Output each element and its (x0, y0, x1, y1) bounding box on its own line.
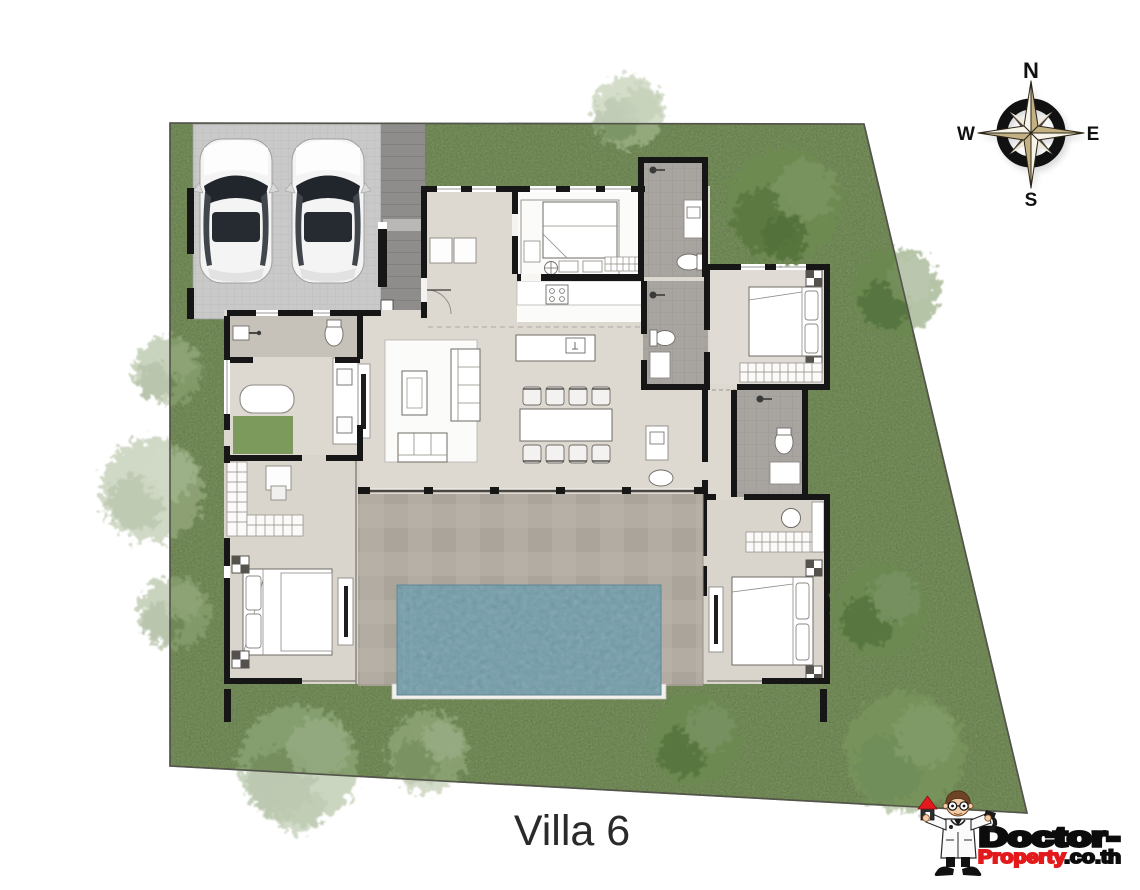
svg-text:Villa 6: Villa 6 (514, 807, 630, 855)
svg-text:S: S (1025, 190, 1038, 211)
svg-text:E: E (1087, 124, 1100, 145)
svg-text:W: W (957, 124, 975, 145)
svg-text:N: N (1023, 58, 1039, 83)
svg-text:Property.co.th: Property.co.th (978, 847, 1121, 867)
